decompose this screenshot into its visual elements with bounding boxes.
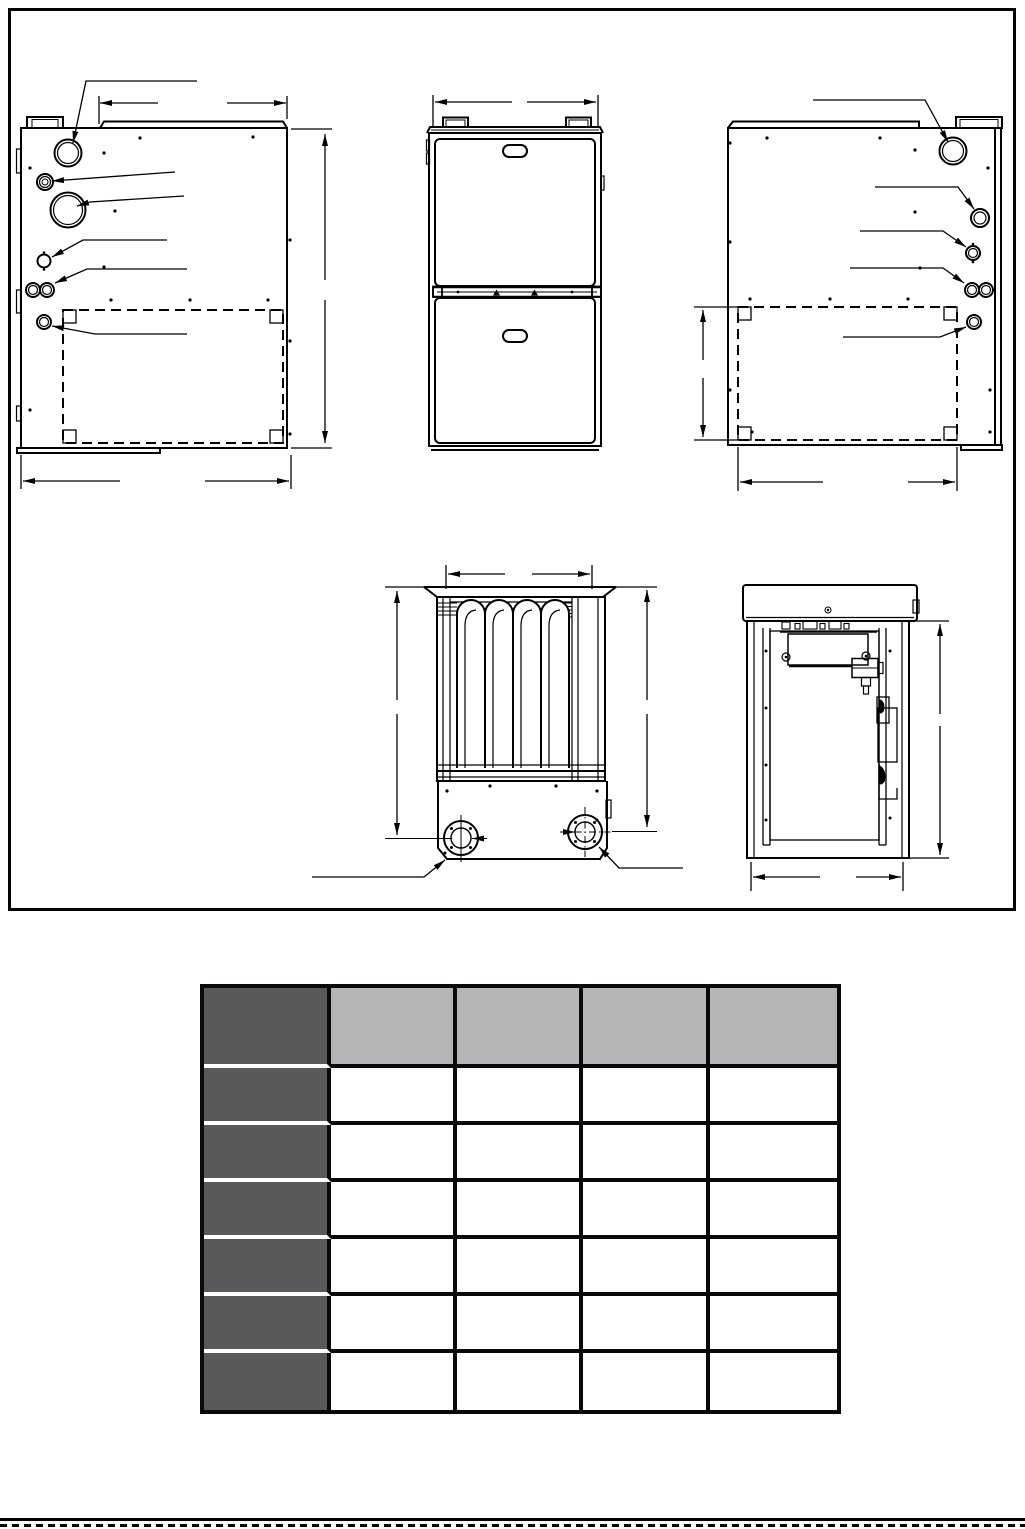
cabinet-outline: [747, 621, 909, 858]
data-cell: [710, 1239, 837, 1296]
data-cell: [710, 1296, 837, 1353]
unit-front-view: [427, 95, 605, 450]
dimension-lines: [433, 95, 598, 127]
row-label-cell: [204, 1239, 331, 1296]
data-cell: [710, 1182, 837, 1239]
table-header-cell: [583, 988, 710, 1068]
row-label-cell: [204, 1182, 331, 1239]
lower-door-handle: [503, 330, 527, 342]
table-corner-cell: [204, 988, 331, 1068]
electrical-grommet: [37, 174, 53, 190]
footer-separator-solid: [0, 1518, 1025, 1521]
control-box: [788, 634, 868, 665]
page: { "theme": { "page-bg": "#ffffff", "line…: [0, 0, 1025, 1529]
data-cell: [710, 1068, 837, 1125]
base-rail: [961, 445, 1002, 450]
data-cell: [710, 1353, 837, 1410]
combustion-air-opening: [51, 193, 86, 228]
data-cell: [331, 1068, 457, 1125]
dimension-lines: [751, 621, 949, 891]
data-cell: [710, 1125, 837, 1182]
return-air-opening-dashed: [63, 310, 283, 443]
data-cell: [457, 1296, 583, 1353]
knockout-1: [971, 209, 989, 227]
return-air-opening-dashed: [738, 307, 957, 440]
twin-knockouts: [26, 283, 54, 297]
data-cell: [583, 1296, 710, 1353]
small-knockout: [38, 255, 51, 268]
drain-knockout: [967, 315, 981, 329]
unit-rear-view-left: [17, 81, 333, 489]
dimension-lines: [694, 307, 957, 491]
cabinet-outline: [728, 128, 995, 445]
row-label-cell: [204, 1068, 331, 1125]
data-cell: [331, 1239, 457, 1296]
data-cell: [583, 1353, 710, 1410]
data-cell: [583, 1182, 710, 1239]
flue-collar-right: [560, 807, 612, 857]
screw-dots: [728, 136, 991, 433]
data-cell: [331, 1353, 457, 1410]
data-cell: [457, 1239, 583, 1296]
cabinet-internal-side-view: [743, 585, 949, 891]
vent-stub: [956, 117, 1002, 128]
heat-exchanger-view: [312, 565, 683, 877]
data-cell: [457, 1125, 583, 1182]
drain-knockout: [37, 315, 51, 329]
top-tab-right: [566, 118, 591, 128]
table-header-cell: [331, 988, 457, 1068]
burner-assembly: [877, 697, 897, 799]
cabinet-outline: [429, 133, 601, 446]
cabinet-outline: [21, 128, 287, 448]
spec-table: [200, 984, 841, 1414]
exchanger-tubes: [457, 600, 569, 768]
leader-lines: [813, 100, 974, 337]
lower-door: [435, 298, 595, 443]
knockout-2: [966, 246, 980, 260]
flue-opening: [55, 140, 82, 167]
data-cell: [457, 1068, 583, 1125]
row-label-cell: [204, 1296, 331, 1353]
upper-door: [435, 139, 595, 286]
twin-knockouts: [965, 283, 993, 297]
leader-lines: [52, 81, 197, 334]
table-header-cell: [457, 988, 583, 1068]
flue-opening: [940, 138, 967, 165]
base-rail: [17, 448, 160, 453]
unit-rear-view-right: [694, 100, 1002, 491]
top-cap: [743, 585, 917, 621]
data-cell: [583, 1239, 710, 1296]
row-label-cell: [204, 1353, 331, 1410]
row-label-cell: [204, 1125, 331, 1182]
data-cell: [331, 1296, 457, 1353]
data-cell: [331, 1125, 457, 1182]
data-cell: [583, 1068, 710, 1125]
data-cell: [457, 1182, 583, 1239]
table-header-cell: [710, 988, 837, 1068]
data-cell: [331, 1182, 457, 1239]
upper-door-handle: [503, 145, 527, 157]
top-tab-left: [443, 118, 468, 128]
data-cell: [457, 1353, 583, 1410]
inner-panel: [770, 631, 879, 840]
door-seam: [433, 287, 601, 298]
leader-lines: [312, 847, 683, 877]
footer-separator-dashed: [0, 1524, 1025, 1527]
data-cell: [583, 1125, 710, 1182]
